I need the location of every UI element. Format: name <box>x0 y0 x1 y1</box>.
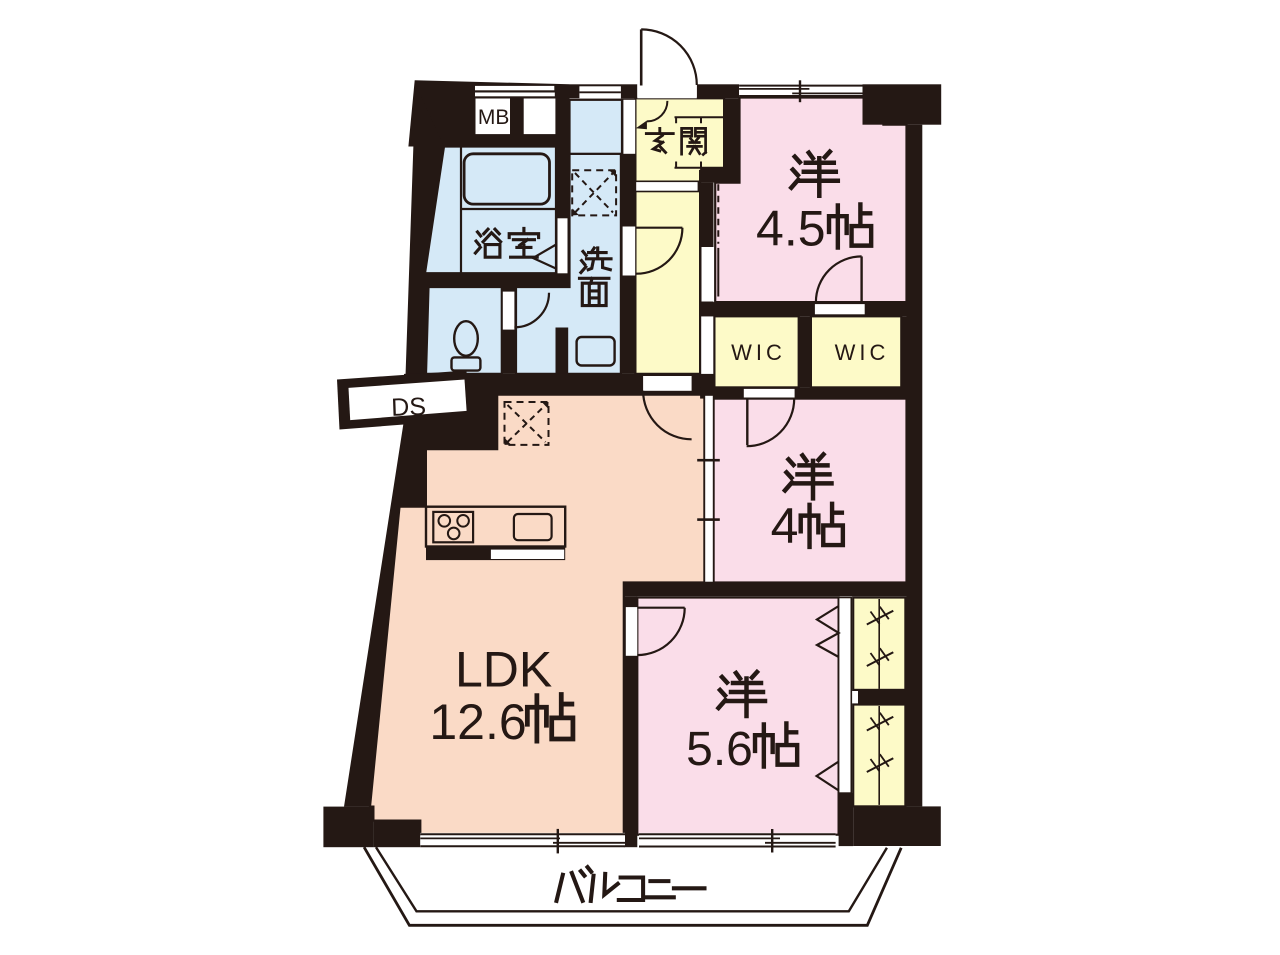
svg-text:4: 4 <box>771 498 799 554</box>
svg-text:LDK: LDK <box>455 642 552 698</box>
svg-text:12.6: 12.6 <box>429 694 526 750</box>
svg-text:DS: DS <box>391 393 427 422</box>
svg-text:5.6: 5.6 <box>686 723 753 776</box>
svg-text:WIC: WIC <box>835 340 890 365</box>
svg-text:4.5: 4.5 <box>756 201 826 257</box>
svg-text:MB: MB <box>478 106 510 129</box>
svg-text:WIC: WIC <box>731 340 786 365</box>
